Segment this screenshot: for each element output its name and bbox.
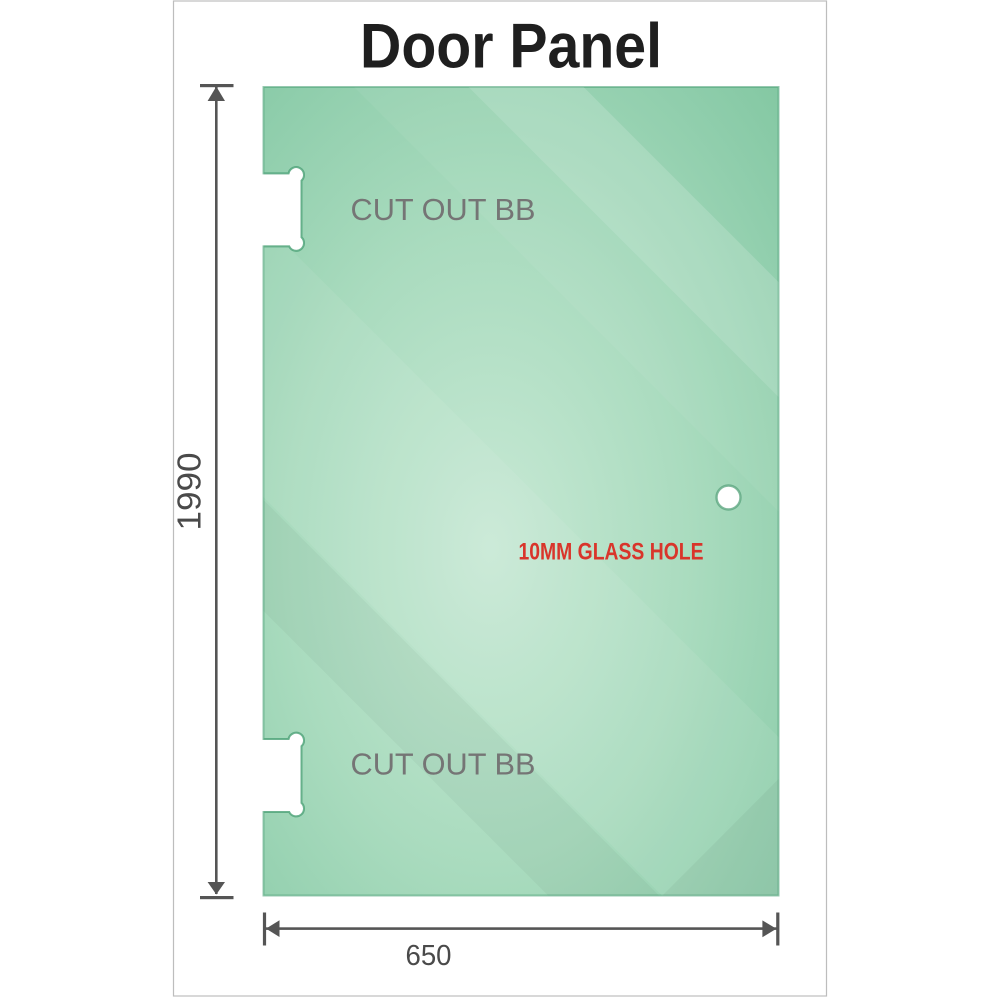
svg-text:650: 650: [406, 940, 452, 972]
svg-text:Door Panel: Door Panel: [360, 12, 662, 82]
svg-text:10MM GLASS HOLE: 10MM GLASS HOLE: [519, 539, 704, 566]
svg-text:CUT OUT BB: CUT OUT BB: [351, 192, 536, 227]
svg-text:CUT OUT BB: CUT OUT BB: [351, 747, 536, 782]
svg-text:1990: 1990: [171, 453, 208, 531]
